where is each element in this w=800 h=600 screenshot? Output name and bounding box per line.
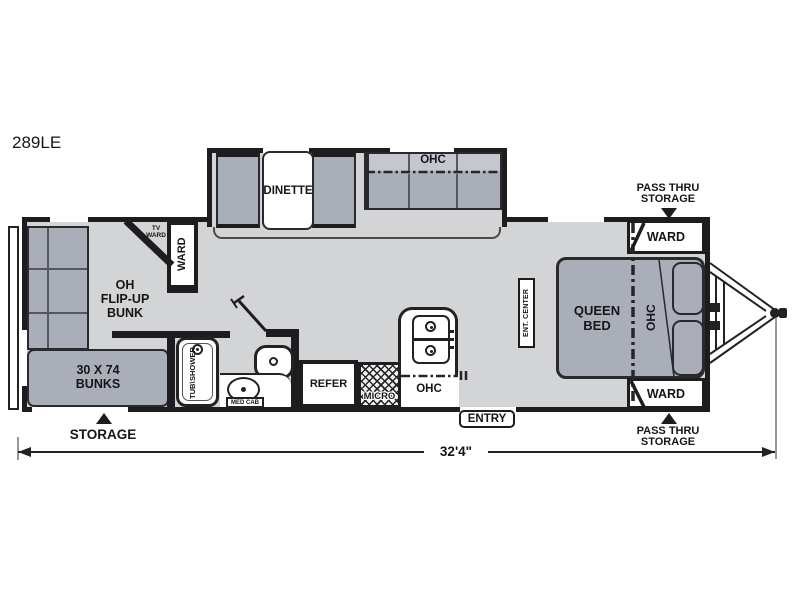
window-front-top <box>548 217 604 222</box>
bed-ohc-label: OHC <box>641 294 661 342</box>
ward-front-top-label: WARD <box>647 230 685 244</box>
dimension-arrow-right <box>762 447 775 457</box>
tub-line: SHOWER <box>189 347 198 381</box>
sofa-cushion-divider <box>408 174 410 208</box>
dimension-arrow-left <box>18 447 31 457</box>
med-cab-label: MED CAB <box>231 400 259 406</box>
rear-bumper <box>8 226 19 410</box>
window-bottom-left <box>32 407 128 412</box>
rear-sofa-cushion-divider <box>29 268 87 270</box>
wall-tub-left <box>167 331 175 407</box>
sink-faucet-tick <box>449 346 454 349</box>
floorplan-canvas: MED CAB REFER ENTRY ENT. CENTER WARD WAR… <box>0 0 800 600</box>
pillow-top <box>672 262 704 315</box>
pass-thru-top-label: PASS THRU STORAGE <box>616 183 720 205</box>
bunks-label: 30 X 74 BUNKS <box>40 363 156 391</box>
refrigerator: REFER <box>299 360 358 408</box>
slideout-floor-edge <box>213 227 501 239</box>
flip-bunk-line: OH <box>116 278 135 292</box>
queen-bed-label: QUEEN BED <box>558 303 636 333</box>
entry-label: ENTRY <box>468 413 507 425</box>
bath-sink-drain <box>241 387 246 392</box>
tv-ward-line: TV <box>152 225 160 232</box>
ward-front-bottom: WARD <box>627 378 705 409</box>
tv-ward-line: WARD <box>146 232 166 239</box>
sink-drain-top-dot <box>430 326 433 329</box>
ward-front-bottom-label: WARD <box>647 387 685 401</box>
pass-thru-top-arrow <box>661 208 677 219</box>
tub-line: TUB\ <box>189 381 198 399</box>
hitch-a-frame <box>710 263 775 363</box>
entry-door-badge: ENTRY <box>459 410 515 428</box>
ward-rear-label: WARD <box>169 224 195 284</box>
bunks-line: BUNKS <box>76 377 120 391</box>
flip-bunk-label: OH FLIP-UP BUNK <box>70 278 180 320</box>
queen-line: QUEEN <box>574 303 620 318</box>
hitch-arm <box>710 263 775 310</box>
hitch-jack <box>710 303 720 312</box>
tv-ward-label: TV WARD <box>139 225 173 239</box>
ward-front-top: WARD <box>627 220 705 254</box>
refer-label: REFER <box>310 378 347 390</box>
bunks-line: 30 X 74 <box>76 363 119 377</box>
pass-thru-line: STORAGE <box>641 436 695 448</box>
flip-bunk-line: FLIP-UP <box>101 292 150 306</box>
wall-bath-door-jamb <box>266 329 293 337</box>
wall-bed-bath <box>112 331 170 338</box>
hitch-coupler <box>770 308 780 318</box>
storage-arrow <box>96 413 112 424</box>
toilet-flush-icon <box>269 357 278 366</box>
flip-bunk-line: BUNK <box>107 306 143 320</box>
hitch-coupler-stub <box>779 308 787 318</box>
rear-sofa-back-divider <box>47 228 49 348</box>
med-cab-box: MED CAB <box>226 397 264 408</box>
hitch-arm <box>710 317 775 363</box>
ent-center-label: ENT. CENTER <box>518 279 535 347</box>
window-rear-top <box>50 217 88 222</box>
model-title: 289LE <box>12 133 61 153</box>
hitch-arm <box>710 316 766 354</box>
dimension-label: 32'4" <box>424 444 488 460</box>
pass-thru-line: STORAGE <box>641 193 695 205</box>
hitch-arm <box>710 272 766 311</box>
hitch-jack <box>710 321 720 330</box>
sink-faucet-tick <box>449 338 454 341</box>
pass-thru-bottom-label: PASS THRU STORAGE <box>616 426 720 448</box>
kitchen-sink-divider <box>414 338 448 341</box>
storage-label: STORAGE <box>48 427 158 442</box>
pillow-bottom <box>672 320 704 376</box>
sofa-cushion-divider <box>456 174 458 208</box>
sink-drain-bottom-dot <box>430 350 433 353</box>
micro-label: MICRO <box>355 391 404 402</box>
kitchen-ohc-label: OHC <box>398 383 460 395</box>
sink-faucet-tick <box>449 330 454 333</box>
sofa-ohc-label: OHC <box>404 154 462 166</box>
queen-line: BED <box>583 318 610 333</box>
sofa-armrest <box>364 152 369 210</box>
pass-thru-bottom-arrow <box>661 413 677 424</box>
tub-shower-label: TUB\ SHOWER <box>180 345 206 401</box>
dinette-label: DINETTE <box>248 185 328 197</box>
